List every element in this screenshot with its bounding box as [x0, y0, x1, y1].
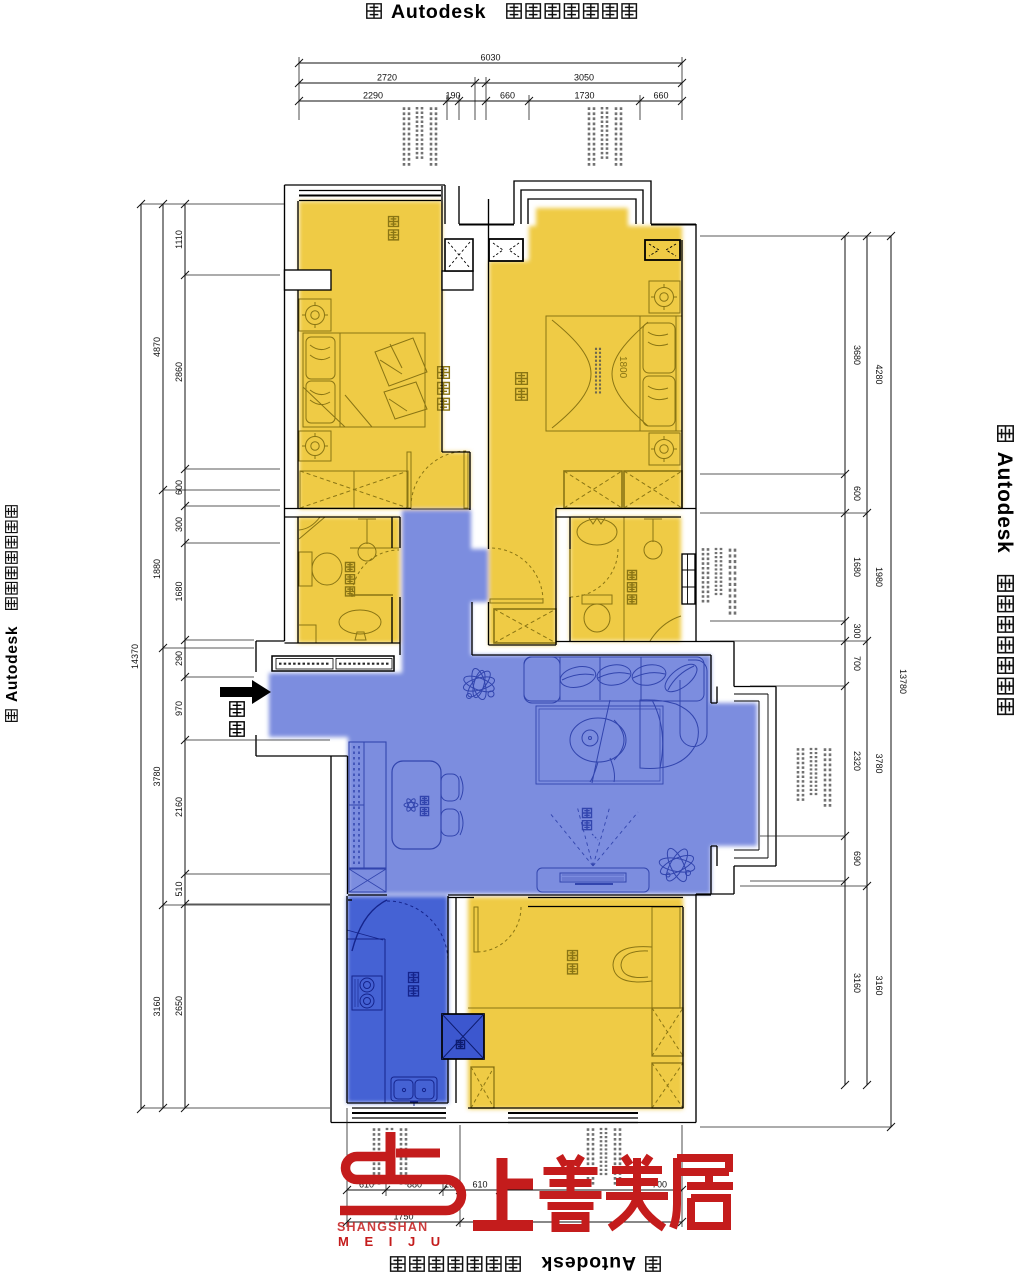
svg-text:510: 510: [174, 881, 184, 896]
svg-text:660: 660: [500, 91, 515, 101]
svg-text:2720: 2720: [377, 73, 397, 83]
svg-text:970: 970: [174, 701, 184, 716]
svg-text:6030: 6030: [480, 53, 500, 63]
svg-text:1680: 1680: [852, 557, 862, 577]
svg-text:190: 190: [445, 91, 460, 101]
svg-text:M E I J U: M E I J U: [338, 1234, 446, 1249]
svg-text:3780: 3780: [152, 766, 162, 786]
svg-text:700: 700: [852, 656, 862, 671]
svg-text:2860: 2860: [174, 362, 184, 382]
svg-text:Autodesk: Autodesk: [993, 452, 1016, 554]
svg-text:290: 290: [174, 651, 184, 666]
svg-text:1880: 1880: [152, 559, 162, 579]
svg-text:Autodesk: Autodesk: [541, 1252, 636, 1274]
svg-text:4870: 4870: [152, 337, 162, 357]
svg-text:690: 690: [852, 851, 862, 866]
svg-text:3680: 3680: [852, 345, 862, 365]
svg-text:2650: 2650: [174, 996, 184, 1016]
svg-text:1110: 1110: [174, 230, 184, 249]
svg-text:2160: 2160: [174, 797, 184, 817]
svg-text:300: 300: [174, 517, 184, 532]
svg-text:Autodesk: Autodesk: [4, 626, 21, 702]
svg-text:3160: 3160: [152, 996, 162, 1016]
svg-text:600: 600: [174, 480, 184, 495]
svg-text:2290: 2290: [363, 91, 383, 101]
svg-text:14370: 14370: [130, 644, 140, 669]
svg-text:300: 300: [852, 623, 862, 638]
svg-text:660: 660: [653, 91, 668, 101]
svg-text:1730: 1730: [574, 91, 594, 101]
svg-text:3050: 3050: [574, 73, 594, 83]
svg-text:3160: 3160: [852, 973, 862, 993]
svg-text:1680: 1680: [174, 581, 184, 601]
svg-text:600: 600: [852, 486, 862, 501]
svg-text:1800: 1800: [617, 356, 628, 379]
svg-text:13780: 13780: [898, 669, 908, 694]
svg-text:SHANGSHAN: SHANGSHAN: [337, 1220, 428, 1234]
svg-text:3160: 3160: [874, 975, 884, 995]
svg-text:4280: 4280: [874, 364, 884, 384]
svg-text:610: 610: [472, 1180, 487, 1190]
svg-text:1980: 1980: [874, 567, 884, 587]
svg-text:2320: 2320: [852, 751, 862, 771]
svg-text:3780: 3780: [874, 753, 884, 773]
svg-text:Autodesk: Autodesk: [391, 1, 486, 23]
